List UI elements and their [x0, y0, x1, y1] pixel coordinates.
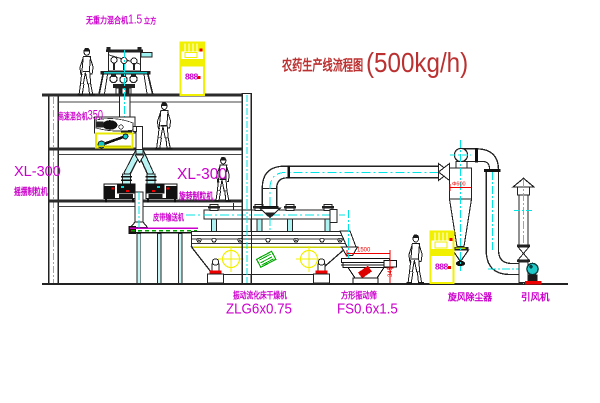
svg-text:旋风除尘器: 旋风除尘器 [447, 291, 493, 302]
svg-text:888: 888 [185, 72, 198, 82]
svg-text:Φ600: Φ600 [452, 182, 466, 188]
svg-text:引风机: 引风机 [521, 292, 550, 304]
svg-text:ZLG6x0.75: ZLG6x0.75 [226, 300, 292, 317]
svg-text:高速混合机350: 高速混合机350 [58, 107, 103, 124]
svg-text:摇摆制粒机: 摇摆制粒机 [14, 186, 48, 198]
svg-text:FS0.6x1.5: FS0.6x1.5 [337, 300, 398, 317]
svg-text:无重力混合机1.5 立方: 无重力混合机1.5 立方 [86, 12, 156, 26]
svg-text:888: 888 [435, 262, 448, 272]
svg-text:XL-300: XL-300 [177, 166, 227, 183]
svg-text:(500kg/h): (500kg/h) [366, 49, 468, 79]
svg-text:1500: 1500 [357, 248, 371, 254]
svg-text:XL-300: XL-300 [14, 164, 61, 180]
svg-text:农药生产线流程图: 农药生产线流程图 [281, 57, 363, 74]
svg-text:345: 345 [388, 266, 394, 277]
svg-text:旋转制粒机: 旋转制粒机 [178, 190, 214, 201]
svg-text:皮带输送机: 皮带输送机 [152, 211, 184, 223]
